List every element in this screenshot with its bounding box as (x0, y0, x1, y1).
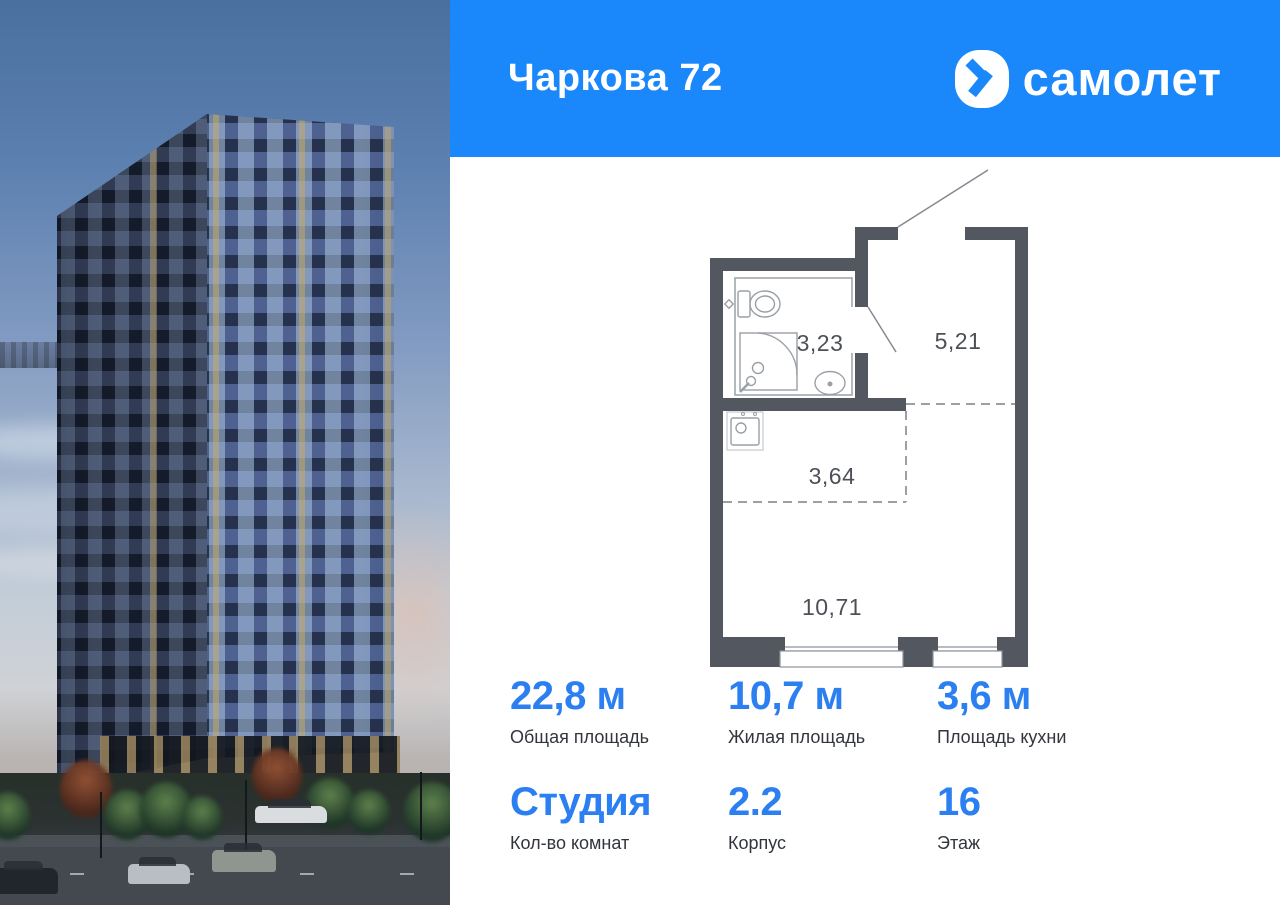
tree (182, 796, 222, 840)
bathroom-area-label: 3,23 (797, 330, 844, 356)
stat-label: Кол-во комнат (510, 833, 728, 854)
apartment-stats: 22,8 м Общая площадь 10,7 м Жилая площад… (510, 676, 1157, 854)
toilet-icon (725, 291, 780, 317)
stat-label: Площадь кухни (937, 727, 1157, 748)
kitchen-area-label: 3,64 (809, 463, 856, 489)
stat-value: 16 (937, 782, 1157, 822)
stat-value: 22,8 м (510, 676, 728, 716)
stat-label: Жилая площадь (728, 727, 937, 748)
building-photo (0, 0, 450, 905)
car (128, 864, 190, 884)
shower-icon (740, 333, 797, 392)
stat-label: Этаж (937, 833, 1157, 854)
stat-floor: 16 Этаж (937, 782, 1157, 854)
samolet-logo: самолет (955, 50, 1222, 108)
stat-value: 10,7 м (728, 676, 937, 716)
stat-building: 2.2 Корпус (728, 782, 937, 854)
tree (348, 790, 390, 834)
car (255, 806, 327, 823)
car (212, 850, 276, 872)
tree (252, 748, 302, 804)
living-area-label: 10,71 (802, 594, 862, 620)
zone-dashed-lines (723, 404, 1015, 502)
kitchen-sink-icon (727, 412, 763, 450)
floor-plan: 3,23 5,21 3,64 10,71 (700, 165, 1040, 710)
sink-icon (815, 372, 845, 395)
distant-city-silhouette (0, 342, 60, 368)
samolet-wordmark: самолет (1023, 51, 1222, 106)
stat-label: Корпус (728, 833, 937, 854)
card-header: Чаркова 72 самолет (450, 0, 1280, 157)
hallway-area-label: 5,21 (935, 328, 982, 354)
samolet-logo-icon (955, 50, 1009, 108)
window (780, 637, 903, 667)
stat-total-area: 22,8 м Общая площадь (510, 676, 728, 748)
stat-value: Студия (510, 782, 728, 822)
stat-value: 3,6 м (937, 676, 1157, 716)
project-title: Чаркова 72 (508, 57, 723, 100)
stat-living-area: 10,7 м Жилая площадь (728, 676, 937, 748)
stat-rooms: Студия Кол-во комнат (510, 782, 728, 854)
street-light (420, 772, 422, 840)
stat-label: Общая площадь (510, 727, 728, 748)
door-swing-lines (868, 170, 988, 352)
car (0, 868, 58, 894)
listing-card: Чаркова 72 самолет (450, 0, 1280, 905)
stat-kitchen-area: 3,6 м Площадь кухни (937, 676, 1157, 748)
street-light (100, 792, 102, 858)
street-light (245, 780, 247, 850)
window (933, 637, 1002, 667)
stat-value: 2.2 (728, 782, 937, 822)
